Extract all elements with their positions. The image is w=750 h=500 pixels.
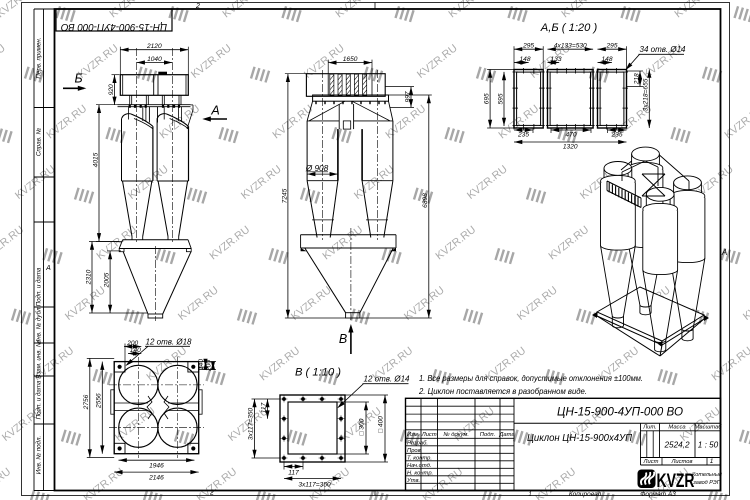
svg-text:Пров.: Пров. <box>407 448 422 454</box>
svg-text:Лит.: Лит. <box>642 425 657 431</box>
svg-text:1650: 1650 <box>343 56 358 63</box>
svg-text:7245: 7245 <box>281 188 288 203</box>
svg-text:Т. контр.: Т. контр. <box>407 455 432 461</box>
svg-text:2146: 2146 <box>148 474 164 481</box>
svg-text:295: 295 <box>605 43 617 50</box>
svg-text:133: 133 <box>550 56 561 63</box>
svg-text:12 отв. Ø18: 12 отв. Ø18 <box>146 337 193 346</box>
svg-text:218: 218 <box>633 73 640 85</box>
svg-text:4015: 4015 <box>92 152 99 167</box>
svg-text:3х117=350: 3х117=350 <box>247 408 254 441</box>
svg-text:Масса: Масса <box>668 425 686 431</box>
svg-text:В ( 1:10 ): В ( 1:10 ) <box>295 367 341 379</box>
svg-text:1040: 1040 <box>147 56 162 63</box>
svg-text:Лист: Лист <box>421 432 437 438</box>
svg-text:Подп. и дата: Подп. и дата <box>36 267 43 306</box>
svg-text:140: 140 <box>130 347 141 354</box>
svg-text:3х117=350: 3х117=350 <box>298 481 331 488</box>
svg-text:2556: 2556 <box>96 393 103 409</box>
svg-text:Инв. № подл.: Инв. № подл. <box>36 436 43 474</box>
svg-text:200: 200 <box>126 340 138 347</box>
svg-text:□ 300: □ 300 <box>358 418 365 435</box>
svg-text:В: В <box>339 332 347 346</box>
svg-text:Б: Б <box>75 72 83 86</box>
svg-text:3х218=655: 3х218=655 <box>643 78 650 111</box>
svg-text:Подп.: Подп. <box>480 432 495 438</box>
svg-text:200: 200 <box>206 360 213 372</box>
svg-text:Котельный: Котельный <box>692 471 722 478</box>
svg-text:695: 695 <box>484 93 491 104</box>
svg-text:1: 1 <box>710 458 714 465</box>
svg-text:148: 148 <box>601 56 612 63</box>
svg-text:Подп. и дата: Подп. и дата <box>36 380 43 419</box>
svg-text:1 : 50: 1 : 50 <box>698 441 719 450</box>
svg-text:Справ. №: Справ. № <box>36 128 43 156</box>
svg-text:4х133=530: 4х133=530 <box>554 43 587 50</box>
svg-text:2: 2 <box>209 490 214 497</box>
svg-text:997: 997 <box>404 91 411 102</box>
svg-text:Листов: Листов <box>670 459 692 465</box>
svg-text:2310: 2310 <box>85 269 92 285</box>
svg-text:235: 235 <box>610 132 622 139</box>
svg-text:2005: 2005 <box>104 272 111 288</box>
svg-text:1946: 1946 <box>149 463 164 470</box>
svg-text:Н. контр.: Н. контр. <box>407 470 433 476</box>
svg-text:А: А <box>45 265 51 272</box>
svg-text:Масштаб: Масштаб <box>694 425 722 431</box>
svg-text:1: 1 <box>528 492 531 498</box>
svg-text:2524,2: 2524,2 <box>663 441 689 450</box>
svg-text:А: А <box>210 104 219 118</box>
svg-text:Копировал: Копировал <box>569 491 602 498</box>
svg-text:Лист: Лист <box>643 459 659 465</box>
svg-text:А,Б ( 1:20 ): А,Б ( 1:20 ) <box>540 22 598 34</box>
svg-text:Дата: Дата <box>498 432 515 438</box>
svg-text:34 отв. Ø14: 34 отв. Ø14 <box>640 45 687 54</box>
svg-text:595: 595 <box>497 93 504 104</box>
svg-text:ЦН-15-900-4УП-000 ВО: ЦН-15-900-4УП-000 ВО <box>557 405 683 419</box>
svg-text:Инв. № дубл.: Инв. № дубл. <box>36 306 43 344</box>
svg-text:завод РЭП: завод РЭП <box>692 480 720 486</box>
svg-text:Формат А3: Формат А3 <box>640 491 676 498</box>
svg-text:Взам. инв. №: Взам. инв. № <box>36 340 43 379</box>
svg-text:235: 235 <box>517 132 529 139</box>
svg-text:140: 140 <box>198 359 205 370</box>
svg-text:Разраб.: Разраб. <box>407 440 428 446</box>
svg-text:Циклон ЦН-15-900х4УП: Циклон ЦН-15-900х4УП <box>527 433 633 444</box>
svg-text:117: 117 <box>288 470 299 477</box>
svg-text:Утв.: Утв. <box>406 478 420 484</box>
svg-text:470: 470 <box>565 132 576 139</box>
svg-text:920: 920 <box>108 84 115 95</box>
svg-text:148: 148 <box>519 56 530 63</box>
svg-text:2756: 2756 <box>83 394 90 410</box>
svg-text:Нач.отд.: Нач.отд. <box>407 463 431 469</box>
svg-text:□ 400: □ 400 <box>377 416 384 433</box>
svg-text:Изм.: Изм. <box>407 432 419 438</box>
svg-text:№ докум.: № докум. <box>443 432 469 438</box>
svg-text:1. Все размеры для справок, до: 1. Все размеры для справок, допустимые о… <box>419 373 643 383</box>
svg-text:2: 2 <box>195 3 200 10</box>
svg-text:2. Циклон поставляется в разоб: 2. Циклон поставляется в разобранном вид… <box>418 386 587 396</box>
svg-text:2120: 2120 <box>146 43 162 50</box>
svg-text:295: 295 <box>522 43 534 50</box>
svg-text:А: А <box>721 248 727 257</box>
svg-text:KVZR: KVZR <box>657 471 695 492</box>
svg-text:117: 117 <box>260 402 267 413</box>
svg-text:ЦН-15-900-4УП-000 ВО: ЦН-15-900-4УП-000 ВО <box>60 21 167 32</box>
svg-text:1320: 1320 <box>563 144 578 151</box>
svg-text:12 отв. Ø14: 12 отв. Ø14 <box>364 375 411 384</box>
svg-text:6898: 6898 <box>422 193 429 208</box>
svg-text:Перв. примен.: Перв. примен. <box>36 37 43 78</box>
